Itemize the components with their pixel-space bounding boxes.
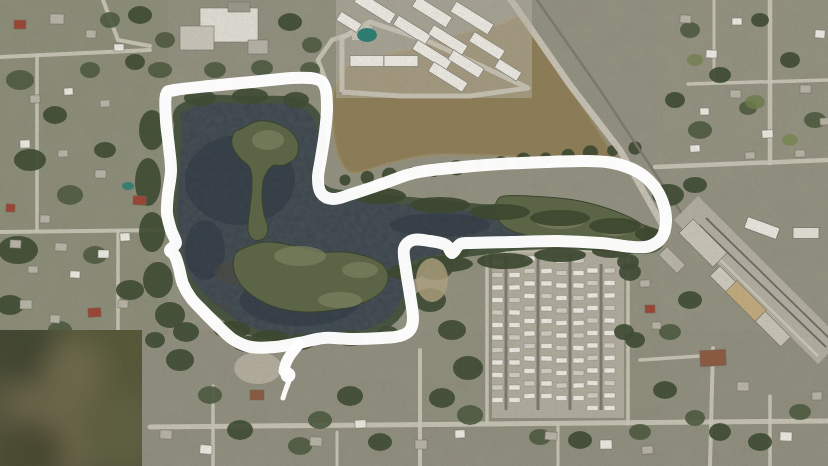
blur-blob <box>45 340 105 400</box>
satellite-screenshot <box>0 0 828 466</box>
satellite-view <box>0 0 828 466</box>
